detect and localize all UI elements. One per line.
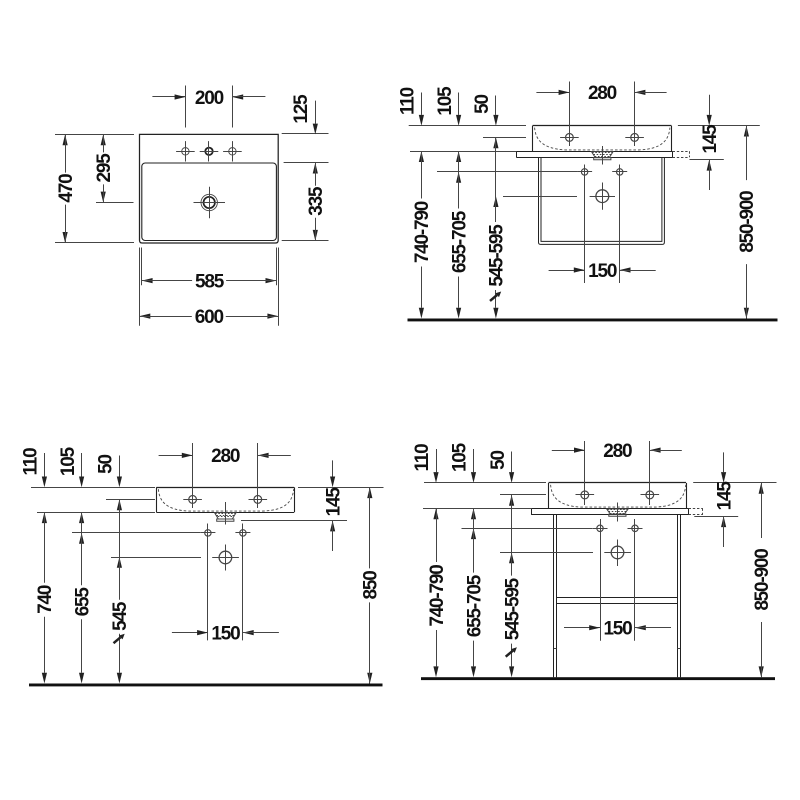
svg-text:545-595: 545-595 bbox=[502, 577, 523, 640]
svg-text:150: 150 bbox=[588, 261, 617, 282]
svg-text:655-705: 655-705 bbox=[449, 210, 470, 273]
svg-text:105: 105 bbox=[435, 86, 456, 116]
svg-text:850: 850 bbox=[361, 571, 382, 600]
svg-text:280: 280 bbox=[588, 83, 617, 104]
svg-text:740-790: 740-790 bbox=[412, 201, 433, 263]
svg-text:600: 600 bbox=[195, 307, 224, 328]
svg-text:655-705: 655-705 bbox=[464, 574, 485, 637]
svg-text:125: 125 bbox=[291, 94, 312, 124]
svg-text:50: 50 bbox=[472, 95, 493, 114]
svg-text:105: 105 bbox=[58, 446, 79, 476]
svg-text:740: 740 bbox=[35, 585, 56, 614]
svg-text:280: 280 bbox=[603, 441, 632, 462]
svg-text:295: 295 bbox=[94, 153, 115, 183]
svg-text:145: 145 bbox=[714, 481, 735, 511]
svg-text:110: 110 bbox=[398, 87, 419, 115]
svg-text:655: 655 bbox=[72, 587, 93, 617]
svg-text:150: 150 bbox=[211, 623, 240, 644]
svg-text:850-900: 850-900 bbox=[752, 549, 773, 611]
svg-text:50: 50 bbox=[488, 451, 509, 470]
svg-text:850-900: 850-900 bbox=[737, 191, 758, 253]
svg-text:200: 200 bbox=[195, 88, 224, 109]
svg-text:545: 545 bbox=[110, 601, 131, 631]
svg-text:280: 280 bbox=[211, 446, 240, 467]
svg-text:585: 585 bbox=[195, 271, 225, 292]
svg-text:335: 335 bbox=[306, 186, 327, 216]
svg-text:50: 50 bbox=[96, 455, 117, 474]
svg-text:145: 145 bbox=[323, 487, 344, 517]
svg-text:110: 110 bbox=[21, 448, 42, 476]
svg-text:105: 105 bbox=[450, 442, 471, 472]
svg-text:545-595: 545-595 bbox=[487, 224, 508, 287]
svg-text:470: 470 bbox=[56, 174, 77, 203]
svg-text:110: 110 bbox=[412, 444, 433, 472]
svg-text:145: 145 bbox=[700, 124, 721, 154]
svg-text:740-790: 740-790 bbox=[427, 565, 448, 627]
svg-text:150: 150 bbox=[603, 619, 632, 640]
